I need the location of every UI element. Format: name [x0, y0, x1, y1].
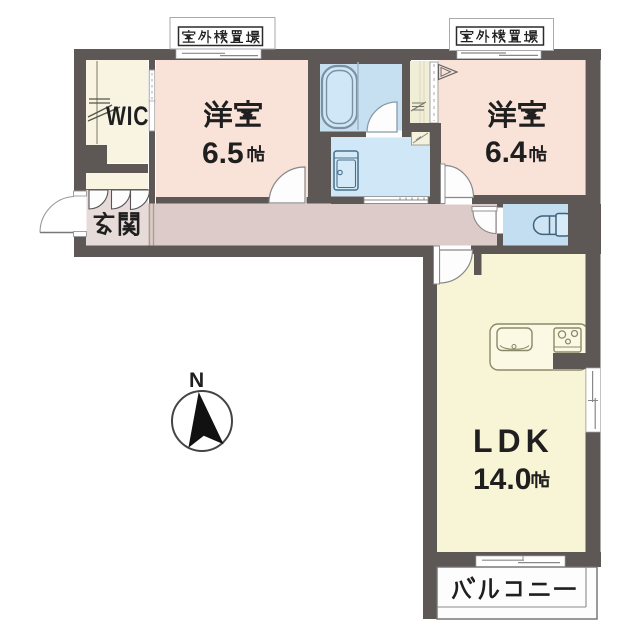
svg-text:N: N: [189, 369, 204, 392]
svg-text:14.0: 14.0: [473, 463, 531, 496]
svg-text:6.5: 6.5: [202, 137, 244, 170]
svg-text:LDK: LDK: [473, 423, 554, 459]
svg-text:WIC: WIC: [106, 102, 149, 132]
svg-text:6.4: 6.4: [485, 136, 527, 169]
